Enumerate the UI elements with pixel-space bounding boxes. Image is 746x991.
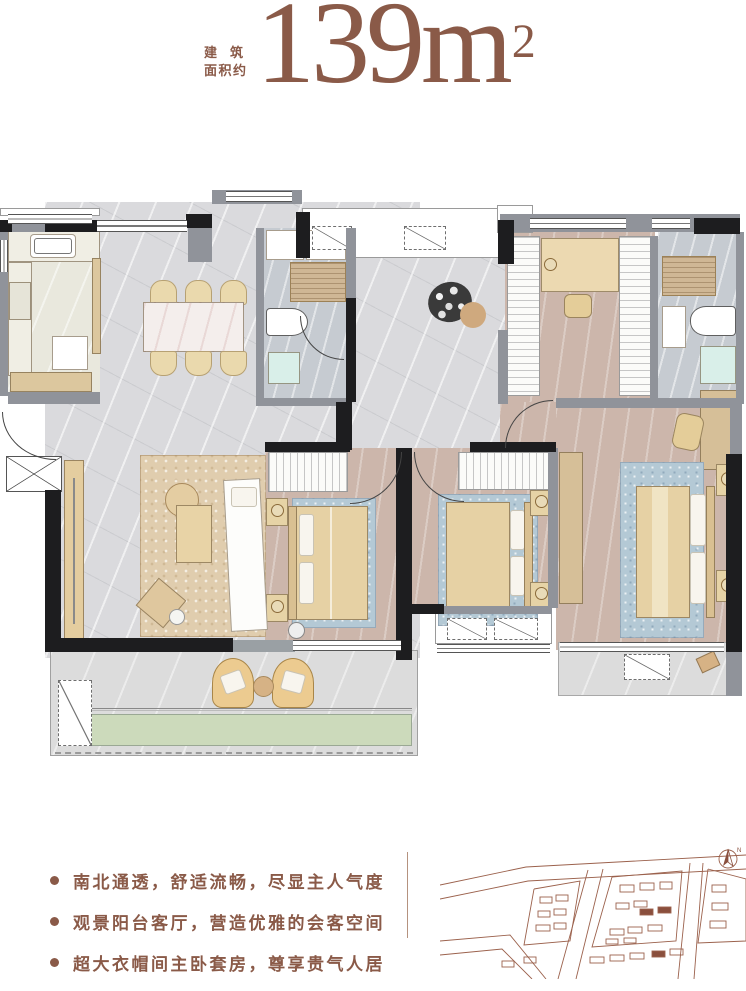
wall-segment [556, 398, 740, 408]
bed2-lamp-1 [271, 504, 284, 517]
feature-item: 南北通透，舒适流畅，尽显主人气度 [50, 868, 385, 893]
feature-item: 超大衣帽间主卧套房，尊享贵气人居 [50, 950, 385, 975]
window [530, 218, 626, 229]
bullet-dot-icon [50, 876, 59, 885]
bed3-lamp-2 [535, 587, 548, 600]
wall-segment [45, 638, 233, 652]
window [293, 640, 401, 651]
balcony-table [253, 676, 274, 697]
master-bed-pattern [652, 487, 668, 617]
bath-shared-shower [268, 352, 300, 384]
wall-segment [730, 402, 742, 456]
ac-unit-4 [494, 618, 538, 640]
kitchen-sink-basin [34, 238, 72, 254]
master-pillow-1 [690, 494, 706, 546]
wall-segment [498, 220, 514, 264]
bath-master-shower [700, 346, 736, 384]
elevator-shaft [6, 456, 62, 492]
feature-list: 南北通透，舒适流畅，尽显主人气度 观景阳台客厅，营造优雅的会客空间 超大衣帽间主… [50, 868, 385, 991]
site-plan-sketch: N [440, 845, 746, 979]
bed3-bed-body [446, 502, 510, 612]
floor-plan [0, 0, 746, 800]
feature-text: 南北通透，舒适流畅，尽显主人气度 [73, 868, 385, 893]
master-dresser [559, 452, 583, 604]
feature-item: 观景阳台客厅，营造优雅的会客空间 [50, 909, 385, 934]
ac-unit-3 [447, 618, 487, 640]
master-headboard [706, 486, 715, 618]
balcony-ac [58, 680, 92, 746]
ac-unit-2 [404, 226, 446, 250]
bed2-wardrobe [268, 452, 348, 492]
wall-segment [186, 214, 212, 228]
wall-segment [346, 228, 356, 300]
bath-master-mat [662, 256, 716, 296]
wall-segment [726, 454, 742, 652]
dining-chair-4 [150, 351, 177, 376]
bed2-lamp-2 [271, 600, 284, 613]
dining-chair-5 [185, 351, 212, 376]
wall-segment [346, 298, 356, 402]
svg-text:N: N [737, 848, 741, 854]
page: { "header": { "area_label_line1": "建筑", … [0, 0, 746, 979]
bullet-dot-icon [50, 917, 59, 926]
bed3-wardrobe [458, 452, 550, 490]
balcony-frame-line [58, 708, 412, 711]
living-chaise-pillow [231, 487, 257, 507]
wall-segment [498, 330, 508, 404]
kitchen-fridge [52, 336, 88, 370]
window [97, 220, 187, 232]
window [652, 218, 690, 229]
balcony-railing [55, 752, 413, 754]
vertical-divider [407, 852, 408, 938]
kitchen-stove [9, 282, 31, 320]
balcony-planter [58, 714, 412, 746]
bath-shared-mat [290, 262, 346, 302]
living-floor-lamp [169, 609, 185, 625]
master-pillow-2 [690, 552, 706, 604]
bed3-pillow-2 [510, 556, 525, 596]
bed2-headboard [288, 506, 297, 620]
wall-segment [265, 442, 350, 452]
feature-text: 超大衣帽间主卧套房，尊享贵气人居 [73, 950, 385, 975]
wall-segment [296, 212, 310, 258]
dining-chair-6 [220, 351, 247, 376]
closet-stool [564, 294, 592, 318]
bullet-dot-icon [50, 958, 59, 967]
window [8, 214, 92, 224]
bath-master-toilet [690, 306, 736, 336]
closet-knob [544, 258, 557, 271]
wall-segment [256, 228, 264, 404]
window [226, 191, 292, 202]
wall-segment [188, 226, 212, 262]
wall-segment [736, 232, 744, 404]
wall-segment [396, 448, 412, 614]
living-coffee-table [176, 505, 212, 563]
floor-hallway [345, 256, 505, 452]
hallway-plant-pot [460, 302, 486, 328]
wall-segment [548, 448, 558, 608]
bed3-lamp-1 [535, 495, 548, 508]
kitchen-cabinet [10, 372, 92, 392]
wall-segment [45, 490, 61, 650]
window [0, 240, 8, 272]
window [560, 642, 724, 652]
bed2-pillow-2 [299, 562, 314, 604]
bed2-pillow-1 [299, 514, 314, 556]
site-plan: N [440, 845, 746, 979]
wall-segment [650, 236, 658, 398]
dining-table [143, 302, 244, 352]
entry-cabinet-rail [73, 478, 75, 624]
window [437, 644, 550, 653]
living-fan [288, 622, 305, 639]
bath-master-cabinet [662, 306, 686, 348]
closet-wardrobe-right [619, 236, 652, 396]
feature-text: 观景阳台客厅，营造优雅的会客空间 [73, 909, 385, 934]
wall-segment [8, 392, 100, 404]
bed2-bed-fold [330, 507, 332, 619]
ac-unit-5 [624, 654, 670, 680]
wall-segment [412, 604, 444, 614]
bed3-pillow-1 [510, 510, 525, 550]
entry-door-arc [2, 412, 56, 460]
balcony-door [225, 640, 295, 652]
wall-segment [444, 606, 552, 614]
compass-icon: N [719, 848, 741, 868]
kitchen-sliding-door [92, 258, 101, 354]
wall-segment [694, 218, 740, 234]
